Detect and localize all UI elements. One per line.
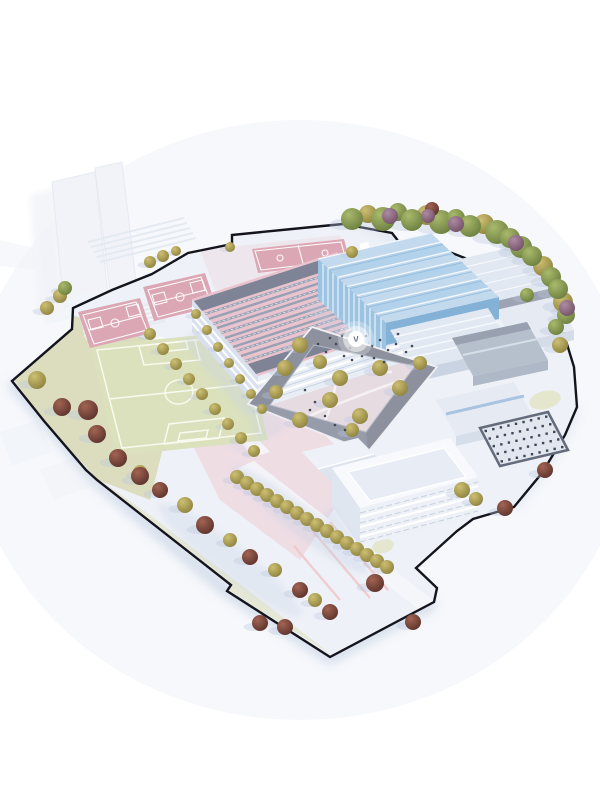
maroon-tree	[152, 482, 168, 498]
carpark-dot	[511, 432, 513, 434]
olive-tree	[225, 242, 235, 252]
olive-tree	[28, 371, 46, 389]
person-dot	[344, 429, 347, 432]
olive-tree	[157, 343, 169, 355]
carpark-dot	[534, 444, 536, 446]
maroon-tree	[497, 500, 513, 516]
olive-tree	[322, 392, 338, 408]
olive-tree	[248, 445, 260, 457]
maroon-tree	[366, 574, 384, 592]
olive-tree	[191, 309, 201, 319]
carpark-dot	[557, 438, 559, 440]
olive-tree	[177, 497, 193, 513]
carpark-dot	[508, 441, 510, 443]
olive-tree	[392, 380, 408, 396]
person-dot	[397, 333, 400, 336]
carpark-dot	[549, 423, 551, 425]
olive-tree	[332, 370, 348, 386]
olive-tree	[277, 360, 293, 376]
maroon-tree	[405, 614, 421, 630]
green-tree	[520, 288, 534, 302]
olive-tree	[346, 246, 358, 258]
olive-tree	[144, 328, 156, 340]
person-dot	[373, 357, 376, 360]
olive-tree	[246, 389, 256, 399]
maroon-tree	[292, 582, 308, 598]
olive-tree	[257, 404, 267, 414]
carpark-dot	[492, 428, 494, 430]
olive-tree	[413, 356, 427, 370]
carpark-dot	[497, 453, 499, 455]
carpark-dot	[493, 445, 495, 447]
olive-tree	[380, 560, 394, 574]
olive-tree	[308, 593, 322, 607]
carpark-dot	[561, 446, 563, 448]
carpark-dot	[522, 421, 524, 423]
olive-tree	[352, 408, 368, 424]
carpark-dot	[545, 415, 547, 417]
olive-tree	[269, 385, 283, 399]
carpark-dot	[538, 451, 540, 453]
carpark-dot	[530, 436, 532, 438]
maroon-tree	[88, 425, 106, 443]
olive-tree	[292, 337, 308, 353]
carpark-dot	[538, 434, 540, 436]
carpark-dot	[512, 449, 514, 451]
olive-tree	[345, 423, 359, 437]
green-tree	[401, 209, 423, 231]
olive-tree	[454, 482, 470, 498]
maroon-tree	[537, 462, 553, 478]
maroon-tree	[131, 467, 149, 485]
carpark-dot	[504, 434, 506, 436]
purple-tree	[508, 235, 524, 251]
site-marker	[338, 321, 374, 357]
green-tree	[522, 246, 542, 266]
purple-tree	[421, 209, 435, 223]
person-dot	[304, 389, 307, 392]
olive-tree	[170, 358, 182, 370]
person-dot	[325, 351, 328, 354]
purple-tree	[382, 208, 398, 224]
maroon-tree	[252, 615, 268, 631]
maroon-tree	[322, 604, 338, 620]
maroon-tree	[277, 619, 293, 635]
carpark-dot	[485, 430, 487, 432]
carpark-dot	[542, 442, 544, 444]
carpark-dot	[537, 417, 539, 419]
purple-tree	[448, 216, 464, 232]
carpark-dot	[501, 460, 503, 462]
person-dot	[324, 415, 327, 418]
carpark-dot	[534, 427, 536, 429]
carpark-dot	[507, 424, 509, 426]
maroon-tree	[53, 398, 71, 416]
carpark-dot	[489, 437, 491, 439]
maroon-tree	[78, 400, 98, 420]
carpark-dot	[526, 428, 528, 430]
carpark-dot	[515, 440, 517, 442]
olive-tree	[372, 360, 388, 376]
carpark-dot	[508, 458, 510, 460]
purple-tree	[559, 300, 575, 316]
carpark-dot	[504, 451, 506, 453]
green-tree	[58, 281, 72, 295]
person-dot	[351, 359, 354, 362]
olive-tree	[268, 563, 282, 577]
carpark-dot	[523, 455, 525, 457]
person-dot	[379, 339, 382, 342]
carpark-dot	[496, 436, 498, 438]
olive-tree	[171, 246, 181, 256]
screenshot-canvas	[0, 0, 600, 800]
site-plan-render	[0, 0, 600, 800]
carpark-dot	[500, 426, 502, 428]
carpark-dot	[549, 440, 551, 442]
carpark-dot	[553, 448, 555, 450]
carpark-dot	[500, 443, 502, 445]
carpark-dot	[546, 449, 548, 451]
person-dot	[387, 349, 390, 352]
carpark-dot	[541, 425, 543, 427]
olive-tree	[213, 342, 223, 352]
person-dot	[314, 401, 317, 404]
olive-tree	[235, 432, 247, 444]
olive-tree	[157, 250, 169, 262]
carpark-dot	[519, 430, 521, 432]
person-dot	[329, 337, 332, 340]
olive-tree	[313, 355, 327, 369]
carpark-dot	[531, 453, 533, 455]
carpark-dot	[553, 431, 555, 433]
olive-tree	[292, 412, 308, 428]
olive-tree	[40, 301, 54, 315]
green-tree	[548, 279, 568, 299]
olive-tree	[224, 358, 234, 368]
person-dot	[334, 424, 337, 427]
olive-tree	[202, 325, 212, 335]
maroon-tree	[109, 449, 127, 467]
carpark-dot	[519, 447, 521, 449]
green-tree	[548, 319, 564, 335]
green-tree	[341, 208, 363, 230]
olive-tree	[552, 337, 568, 353]
carpark-dot	[527, 445, 529, 447]
olive-tree	[196, 388, 208, 400]
carpark-dot	[530, 419, 532, 421]
person-dot	[317, 343, 320, 346]
maroon-tree	[242, 549, 258, 565]
olive-tree	[222, 418, 234, 430]
olive-tree	[223, 533, 237, 547]
olive-tree	[183, 373, 195, 385]
carpark-dot	[516, 457, 518, 459]
carpark-dot	[545, 432, 547, 434]
person-dot	[383, 361, 386, 364]
marker-core	[348, 331, 364, 347]
carpark-dot	[523, 438, 525, 440]
maroon-tree	[196, 516, 214, 534]
person-dot	[395, 343, 398, 346]
carpark-dot	[515, 423, 517, 425]
olive-tree	[469, 492, 483, 506]
person-dot	[309, 409, 312, 412]
olive-tree	[144, 256, 156, 268]
person-dot	[343, 355, 346, 358]
olive-tree	[209, 403, 221, 415]
olive-tree	[235, 374, 245, 384]
person-dot	[411, 345, 414, 348]
person-dot	[335, 343, 338, 346]
person-dot	[405, 351, 408, 354]
